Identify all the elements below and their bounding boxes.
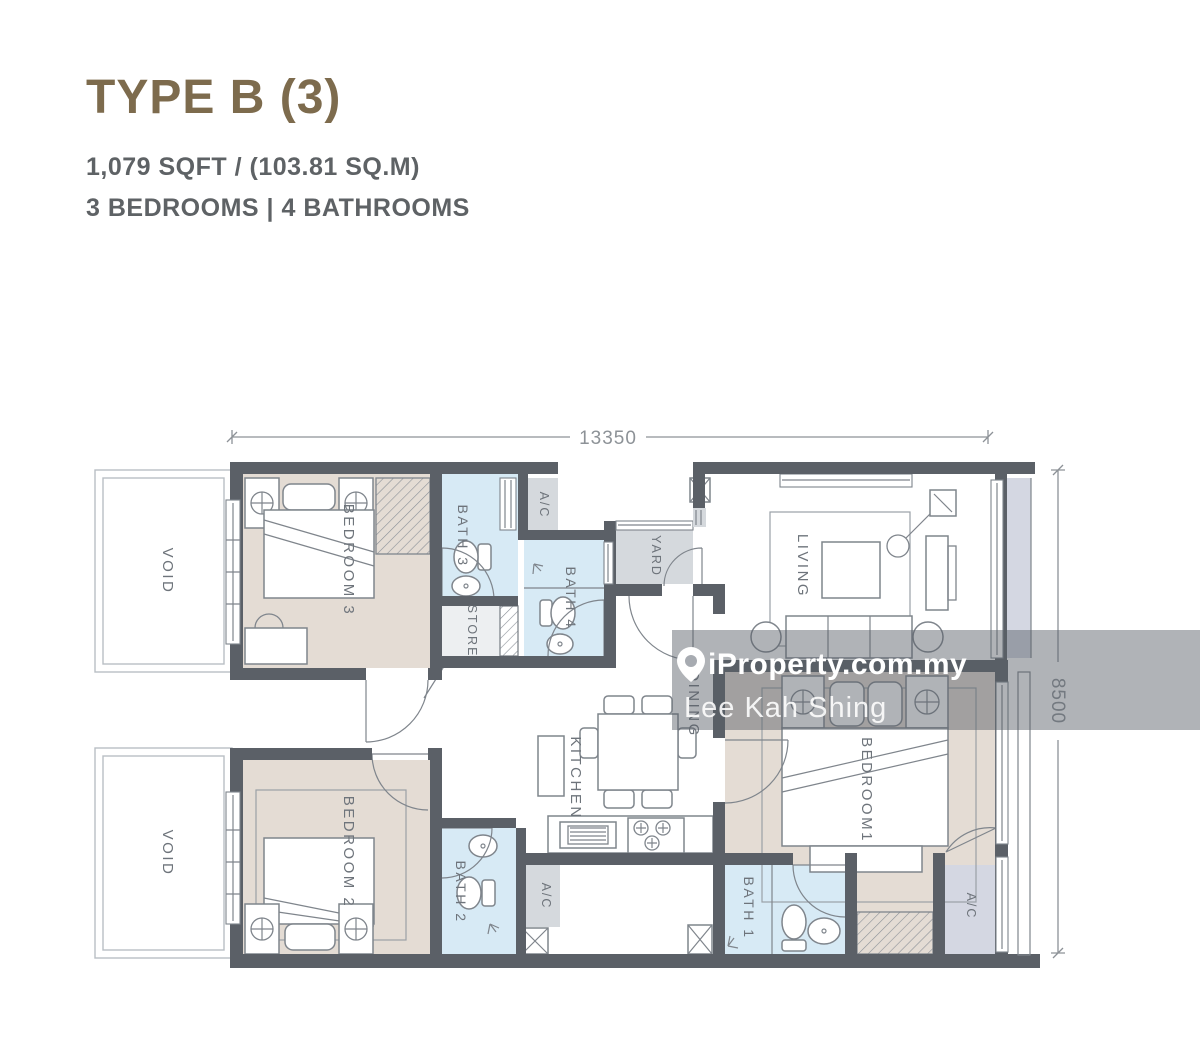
bed-bench — [810, 846, 922, 872]
ac-label: A/C — [539, 883, 553, 910]
bath2-label: BATH 2 — [453, 861, 469, 924]
bath3-label: BATH 3 — [455, 505, 471, 568]
bath1-label: BATH 1 — [741, 877, 757, 940]
ac-label: A/C — [964, 893, 978, 920]
wardrobe — [376, 478, 430, 554]
fridge — [538, 736, 564, 796]
width-dimension: 13350 — [579, 428, 637, 449]
watermark-agent: Lee Kah Shing — [684, 692, 887, 724]
yard-label: YARD — [649, 535, 663, 577]
tv-console — [926, 536, 948, 610]
desk — [245, 628, 307, 664]
bath4-label: BATH 4 — [563, 567, 579, 630]
coffee-table — [822, 542, 880, 598]
void-label: VOID — [159, 548, 176, 595]
bedroom1-label: BEDROOM1 — [858, 737, 875, 843]
watermark-brand: iProperty.com.my — [708, 648, 967, 681]
washbasin — [808, 918, 840, 944]
washbasin — [452, 576, 480, 596]
store-label: STORE — [465, 605, 479, 658]
dimension-width: 13350 — [227, 428, 993, 449]
bedroom3-label: BEDROOM 3 — [340, 504, 357, 617]
living-label: LIVING — [794, 534, 811, 598]
dining-table — [598, 714, 678, 790]
toilet-tank — [478, 544, 491, 570]
lamp — [887, 535, 909, 557]
void-label: VOID — [159, 830, 176, 877]
floor-plan: VOID VOID BEDROOM 3 BATH 3 A/C STORE BAT… — [0, 0, 1200, 1050]
kitchen-label: KITCHEN — [567, 736, 584, 819]
ac-label: A/C — [537, 492, 551, 519]
toilet-tank — [482, 880, 495, 906]
bedroom2-label: BEDROOM 2 — [340, 796, 357, 909]
bedroom3-door-arc — [366, 680, 428, 742]
washbasin — [469, 835, 497, 857]
toilet — [782, 905, 806, 939]
toilet-tank — [782, 940, 806, 951]
watermark: iProperty.com.my Lee Kah Shing — [672, 630, 1200, 730]
wardrobe — [857, 912, 933, 954]
toilet-tank — [540, 600, 552, 626]
